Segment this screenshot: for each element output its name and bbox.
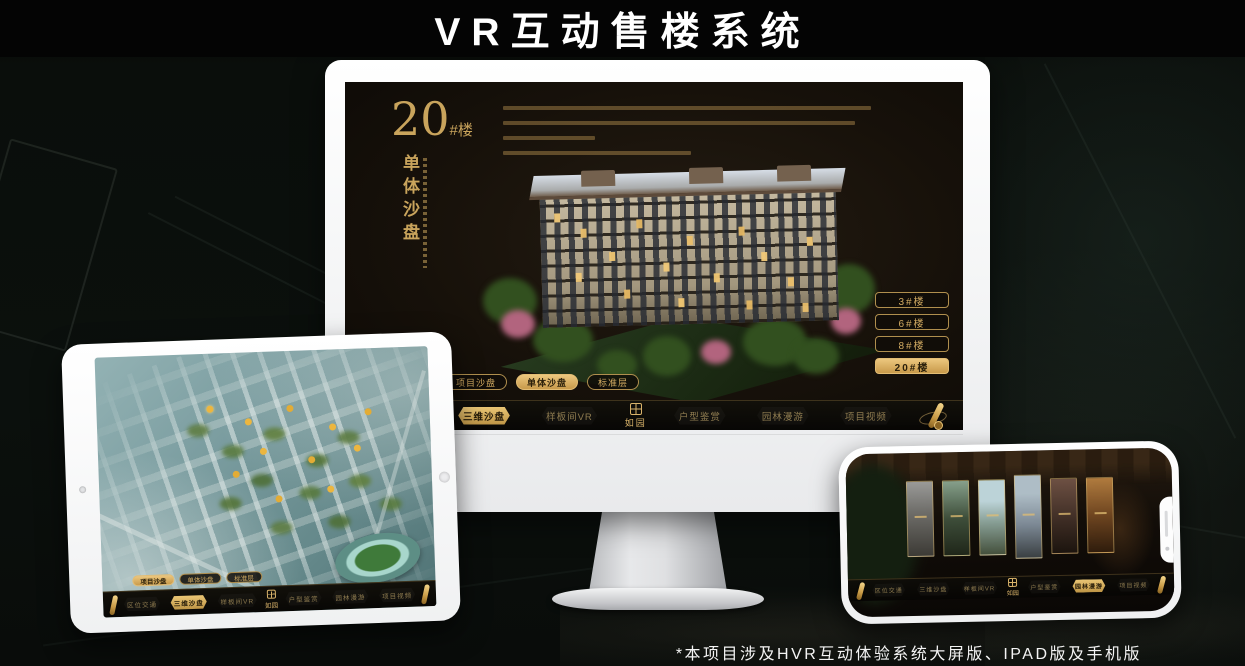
nav-item-traffic[interactable]: 区位交通 (121, 596, 163, 611)
brand-name: 如园 (265, 599, 278, 609)
tab-standard-floor[interactable]: 标准层 (226, 571, 262, 583)
lit-windows (554, 213, 560, 222)
view-tabs: 项目沙盘 单体沙盘 标准层 (445, 374, 639, 390)
tree (643, 336, 691, 376)
tree (793, 338, 839, 374)
paragraph-line (503, 121, 855, 125)
poster: VR互动售楼系统 20#楼 单体沙盘 (0, 0, 1245, 666)
tab-project-sandtable[interactable]: 项目沙盘 (445, 374, 507, 390)
scroll-end-icon[interactable] (421, 584, 430, 605)
speaker-icon (1165, 510, 1169, 536)
phone-notch (1159, 496, 1173, 562)
brand-logo: 如园 (264, 589, 278, 609)
header-bar: VR互动售楼系统 (0, 0, 1245, 57)
scene-card[interactable] (942, 480, 971, 557)
scene-gallery (906, 477, 1115, 561)
tab-project-sandtable[interactable]: 项目沙盘 (132, 574, 174, 586)
tab-single-sandtable[interactable]: 单体沙盘 (516, 374, 578, 390)
nav-item-unit-plans[interactable]: 户型鉴赏 (1025, 580, 1063, 594)
unit-title: 20#楼 (391, 96, 473, 142)
nav-item-project-video[interactable]: 项目视频 (1114, 578, 1152, 592)
tab-standard-floor[interactable]: 标准层 (587, 374, 639, 390)
unit-subtitle: 单体沙盘 (397, 154, 422, 246)
nav-item-3d-sandtable[interactable]: 三维沙盘 (167, 594, 209, 609)
nav-item-garden-tour[interactable]: 园林漫游 (329, 589, 371, 604)
nav-item-traffic[interactable]: 区位交通 (870, 583, 908, 597)
paragraph-line (503, 106, 871, 110)
nav-item-3d-sandtable[interactable]: 三维沙盘 (454, 407, 514, 425)
scene-card[interactable] (978, 479, 1007, 556)
brand-seal-icon (1008, 578, 1017, 587)
camera-icon (1165, 546, 1169, 550)
nav-item-project-video[interactable]: 项目视频 (836, 407, 896, 425)
monitor-stand-base (552, 588, 764, 610)
brand-logo: 如园 (625, 403, 647, 429)
nav-item-garden-tour[interactable]: 园林漫游 (1070, 579, 1108, 593)
monitor-stand (588, 512, 728, 598)
building-facade (540, 192, 839, 328)
brand-seal-icon (266, 589, 275, 598)
nav-item-showroom-vr[interactable]: 样板间VR (959, 581, 1001, 595)
tablet-camera-icon (79, 486, 86, 493)
nav-item-showroom-vr[interactable]: 样板间VR (214, 593, 260, 609)
scroll-end-icon[interactable] (1157, 575, 1166, 594)
description-paragraph (503, 106, 871, 166)
building (539, 168, 839, 328)
floor-selector: 3#楼 6#楼 8#楼 20#楼 (875, 292, 949, 374)
brand-name: 如园 (625, 416, 647, 429)
roof-dormer (777, 165, 811, 182)
floor-button-8[interactable]: 8#楼 (875, 336, 949, 352)
scene-card[interactable] (1014, 474, 1043, 559)
scene-card[interactable] (1050, 478, 1079, 555)
scroll-end-icon[interactable] (109, 594, 118, 615)
nav-item-3d-sandtable[interactable]: 三维沙盘 (914, 582, 952, 596)
floor-button-3[interactable]: 3#楼 (875, 292, 949, 308)
building-model-render[interactable] (493, 168, 885, 403)
nav-item-unit-plans[interactable]: 户型鉴赏 (282, 590, 324, 605)
unit-number: 20 (391, 92, 450, 146)
nav-item-unit-plans[interactable]: 户型鉴赏 (670, 407, 730, 425)
flowering-tree (701, 340, 731, 364)
unit-number-suffix: #楼 (450, 122, 473, 139)
scene-card[interactable] (906, 481, 935, 558)
background-plaque (0, 138, 118, 352)
floor-button-20[interactable]: 20#楼 (875, 358, 949, 374)
brand-logo: 如园 (1007, 578, 1019, 597)
unit-subtitle-caption (423, 158, 427, 268)
footnote: *本项目涉及HVR互动体验系统大屏版、IPAD版及手机版 (676, 640, 1142, 664)
scroll-rod-icon (927, 402, 944, 429)
nav-item-garden-tour[interactable]: 园林漫游 (753, 407, 813, 425)
tablet-home-button[interactable] (439, 471, 450, 482)
scene-card[interactable] (1086, 477, 1115, 554)
scroll-handle-icon[interactable] (919, 402, 949, 430)
nav-item-showroom-vr[interactable]: 样板间VR (537, 407, 602, 425)
roof-dormer (581, 170, 615, 187)
tab-single-sandtable[interactable]: 单体沙盘 (179, 572, 221, 584)
phone-screen: 区位交通 三维沙盘 样板间VR 如园 户型鉴赏 园林漫游 项目视频 (845, 448, 1174, 618)
phone-device: 区位交通 三维沙盘 样板间VR 如园 户型鉴赏 园林漫游 项目视频 (838, 440, 1182, 624)
page-title: VR互动售楼系统 (434, 1, 810, 57)
tablet-screen: 项目沙盘 单体沙盘 标准层 区位交通 三维沙盘 样板间VR 如园 户型鉴赏 园林… (95, 346, 437, 617)
paragraph-line (503, 151, 691, 155)
nav-item-project-video[interactable]: 项目视频 (376, 587, 418, 602)
roof-dormer (689, 167, 723, 184)
paragraph-line (503, 136, 595, 140)
scroll-end-icon[interactable] (856, 581, 865, 600)
brand-name: 如园 (1007, 588, 1019, 597)
brand-seal-icon (630, 403, 642, 415)
tablet-device: 项目沙盘 单体沙盘 标准层 区位交通 三维沙盘 样板间VR 如园 户型鉴赏 园林… (61, 331, 461, 633)
flowering-tree (501, 310, 535, 338)
floor-button-6[interactable]: 6#楼 (875, 314, 949, 330)
